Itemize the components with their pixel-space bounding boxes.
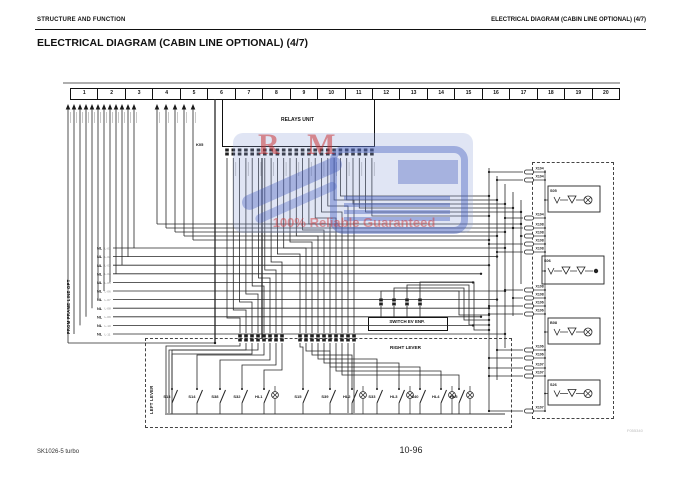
header-left: STRUCTURE AND FUNCTION [37,17,126,23]
frame-line-wires: NLL-01NLL-02NLL-03NLL-04NLL-05NLL-06NLL-… [66,99,523,344]
header-right: ELECTRICAL DIAGRAM (CABIN LINE OPTIONAL)… [300,17,646,23]
svg-text:S06: S06 [544,259,551,263]
svg-text:X107: X107 [536,405,544,409]
svg-text:L-05: L-05 [105,281,111,285]
svg-text:S33: S33 [368,394,376,399]
right-lever-label: RIGHT LEVER [390,345,421,350]
relays-unit-label: RELAYS UNIT [222,117,373,123]
svg-text:X108: X108 [536,222,544,226]
svg-text:NL: NL [97,332,103,337]
svg-text:HL5: HL5 [450,394,458,399]
svg-text:X107: X107 [536,362,544,366]
svg-text:S13: S13 [163,394,171,399]
svg-text:S15: S15 [294,394,302,399]
svg-text:X108: X108 [536,284,544,288]
svg-text:X104: X104 [536,174,544,178]
svg-text:L-11: L-11 [105,332,111,336]
svg-text:L-09: L-09 [105,315,111,319]
manual-page: STRUCTURE AND FUNCTION ELECTRICAL DIAGRA… [0,0,681,481]
svg-text:L-07: L-07 [105,298,111,302]
right-panel-wires: X104X104X104X108X108X108X108X108X108X106… [488,166,604,413]
left-lever-label: LEFT LEVER [149,366,154,414]
svg-text:S40: S40 [411,394,419,399]
svg-text:NL: NL [97,306,103,311]
svg-text:NL: NL [97,314,103,319]
svg-text:S32: S32 [233,394,241,399]
svg-text:X108: X108 [536,230,544,234]
svg-text:S26: S26 [550,383,557,387]
svg-text:X106: X106 [536,300,544,304]
relays-unit-pins-and-mesh [225,149,522,339]
svg-text:X106: X106 [536,308,544,312]
footer-page-number: 10-96 [383,445,439,455]
svg-text:S39: S39 [321,394,329,399]
svg-text:HL1: HL1 [255,394,263,399]
svg-text:X108: X108 [536,246,544,250]
svg-text:HL2: HL2 [343,394,351,399]
page-title: ELECTRICAL DIAGRAM (CABIN LINE OPTIONAL)… [37,37,308,49]
svg-text:X108: X108 [536,238,544,242]
switch-ev-label: SWITCH EV ENP. [368,319,446,324]
svg-text:L-10: L-10 [105,324,111,328]
svg-text:S14: S14 [188,394,196,399]
svg-text:X107: X107 [536,370,544,374]
relays-unit-connector-label: K05 [196,142,203,147]
svg-text:NL: NL [97,297,103,302]
svg-text:X106: X106 [536,344,544,348]
svg-text:X108: X108 [536,292,544,296]
wiring-diagram: NLL-01NLL-02NLL-03NLL-04NLL-05NLL-06NLL-… [0,0,681,481]
svg-text:X106: X106 [536,352,544,356]
svg-text:HL3: HL3 [390,394,398,399]
from-frame-line-label: FROM FRAME LINE OPT [66,262,71,334]
svg-text:NL: NL [97,323,103,328]
footer-model: SK1026-5 turbo [37,449,79,455]
header-rule [35,29,646,30]
svg-text:S05: S05 [550,189,557,193]
lever-box-wires: S13S14S38S32HL1S15S39HL2S33HL3S40HL4HL5 [163,335,505,415]
figure-code: F055340 [627,428,643,433]
svg-text:HL4: HL4 [432,394,440,399]
svg-text:S38: S38 [211,394,219,399]
svg-text:L-08: L-08 [105,307,111,311]
svg-text:X104: X104 [536,212,544,216]
svg-text:B08: B08 [550,321,557,325]
svg-text:X104: X104 [536,166,544,170]
svg-text:L-06: L-06 [105,289,111,293]
